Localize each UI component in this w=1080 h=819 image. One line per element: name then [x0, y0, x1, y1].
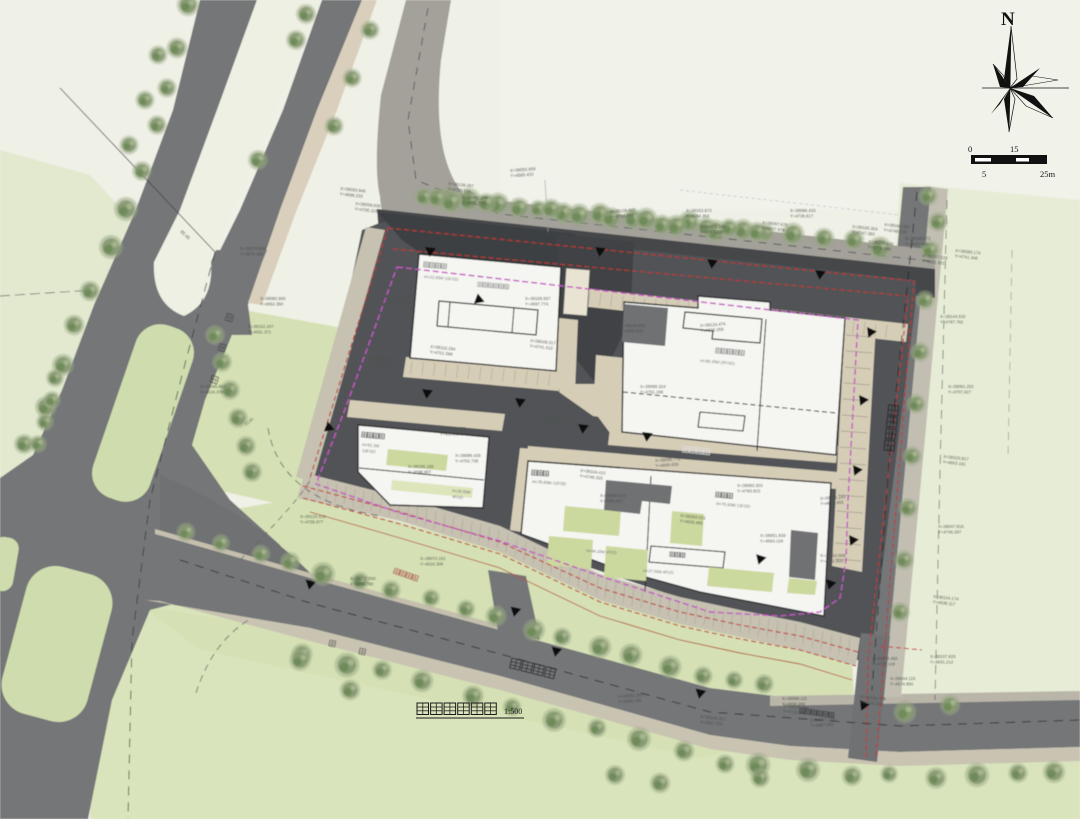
- svg-text:Y=4598.907: Y=4598.907: [408, 469, 432, 474]
- svg-text:X=38096.433: X=38096.433: [790, 208, 816, 213]
- svg-text:X=38047.918: X=38047.918: [938, 524, 964, 529]
- svg-text:X=38153.673: X=38153.673: [686, 208, 712, 213]
- svg-text:X=38044.115: X=38044.115: [890, 676, 916, 681]
- svg-text:X=38089.439: X=38089.439: [455, 453, 481, 458]
- svg-text:X=38083.303: X=38083.303: [737, 483, 763, 488]
- svg-text:5: 5: [982, 169, 986, 179]
- svg-text:X=38082.660: X=38082.660: [260, 296, 286, 301]
- svg-text:X=38045.897: X=38045.897: [200, 384, 226, 389]
- svg-text:Y=4702.738: Y=4702.738: [455, 458, 479, 463]
- svg-text:X=38060.823: X=38060.823: [600, 493, 626, 498]
- svg-text:Y=4631.212: Y=4631.212: [930, 659, 954, 664]
- svg-text:X=38154.895: X=38154.895: [620, 323, 646, 328]
- svg-text:Y=4783.823: Y=4783.823: [737, 488, 761, 493]
- svg-text:X=38073.151: X=38073.151: [420, 556, 446, 561]
- svg-text:X=38050.781: X=38050.781: [368, 356, 394, 361]
- svg-text:X=38099.324: X=38099.324: [640, 384, 666, 389]
- svg-text:Y=4726.617: Y=4726.617: [790, 213, 814, 218]
- svg-text:4F/2D: 4F/2D: [452, 494, 463, 500]
- svg-text:X=38091.252: X=38091.252: [948, 384, 974, 389]
- svg-text:X=38144.532: X=38144.532: [940, 314, 966, 319]
- svg-text:Y=4616.376: Y=4616.376: [200, 389, 224, 394]
- svg-text:Y=4767.200: Y=4767.200: [700, 229, 724, 234]
- svg-text:1:500: 1:500: [504, 707, 522, 716]
- svg-text:X=38074.556: X=38074.556: [240, 246, 266, 251]
- svg-text:Y=4573.172: Y=4573.172: [440, 431, 464, 436]
- svg-text:X=38110.569: X=38110.569: [820, 553, 846, 558]
- svg-text:Y=4682.820: Y=4682.820: [820, 558, 844, 563]
- svg-text:X=38075.143: X=38075.143: [700, 224, 726, 229]
- svg-text:X=38098.111: X=38098.111: [782, 696, 808, 701]
- svg-text:X=38077.556: X=38077.556: [350, 576, 376, 581]
- svg-text:X=38147.232: X=38147.232: [440, 426, 466, 431]
- svg-text:X=38062.244: X=38062.244: [462, 195, 488, 200]
- svg-text:X=38051.839: X=38051.839: [760, 533, 786, 538]
- svg-text:Y=4621.960: Y=4621.960: [905, 241, 929, 246]
- svg-text:Y=4698.788: Y=4698.788: [350, 581, 374, 586]
- svg-text:Y=4591.371: Y=4591.371: [248, 329, 272, 334]
- svg-text:Y=4691.733: Y=4691.733: [462, 200, 486, 205]
- svg-text:X=38120.412: X=38120.412: [300, 514, 326, 519]
- svg-text:Y=4597.774: Y=4597.774: [525, 301, 549, 306]
- svg-text:25m: 25m: [1040, 169, 1056, 179]
- svg-text:Y=4584.354: Y=4584.354: [686, 213, 710, 218]
- svg-text:X=38105.165: X=38105.165: [408, 464, 434, 469]
- svg-text:Y=4570.369: Y=4570.369: [240, 251, 264, 256]
- svg-text:X=38159.557: X=38159.557: [525, 296, 551, 301]
- svg-text:Y=4775.118: Y=4775.118: [872, 661, 896, 666]
- svg-text:Y=4680.627: Y=4680.627: [600, 498, 624, 503]
- svg-text:N: N: [1001, 9, 1015, 30]
- svg-text:0: 0: [968, 144, 972, 154]
- svg-text:X=38158.672: X=38158.672: [905, 236, 931, 241]
- svg-text:Y=4787.792: Y=4787.792: [940, 319, 964, 324]
- svg-text:Y=4652.350: Y=4652.350: [260, 301, 284, 306]
- svg-text:Y=4609.833: Y=4609.833: [620, 328, 644, 333]
- svg-text:X=38107.826: X=38107.826: [930, 654, 956, 659]
- svg-text:X=38074.455: X=38074.455: [872, 656, 898, 661]
- svg-text:Y=4616.306: Y=4616.306: [420, 561, 444, 566]
- svg-text:Y=4574.850: Y=4574.850: [890, 681, 914, 686]
- svg-text:Y=4707.627: Y=4707.627: [948, 389, 972, 394]
- svg-text:15: 15: [1010, 144, 1019, 154]
- svg-text:Y=4705.877: Y=4705.877: [300, 519, 324, 524]
- svg-text:Y=4663.119: Y=4663.119: [760, 538, 784, 543]
- svg-text:X=38152.207: X=38152.207: [248, 324, 274, 329]
- svg-text:Y=4785.490: Y=4785.490: [368, 361, 392, 366]
- svg-text:Y=4761.196: Y=4761.196: [640, 389, 664, 394]
- svg-text:Y=4746.287: Y=4746.287: [938, 529, 962, 534]
